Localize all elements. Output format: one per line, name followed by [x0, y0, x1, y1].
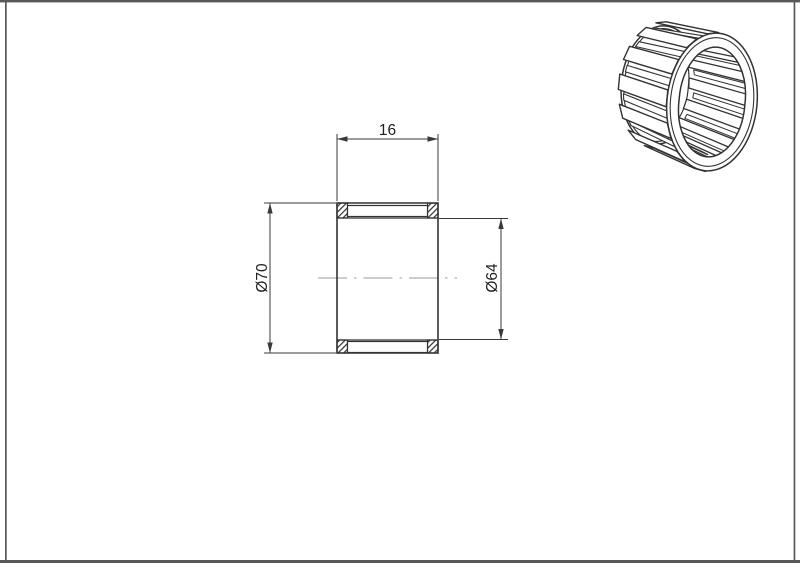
roller-section-top [348, 206, 428, 217]
section-view [318, 203, 457, 353]
hatch-top-left [337, 203, 348, 218]
hatch-top-right [428, 203, 439, 218]
bore-diameter-label: Ø64 [484, 263, 501, 293]
arrowhead-left [337, 136, 348, 141]
hatch-bottom-left [337, 340, 348, 353]
arrowhead-top [498, 219, 503, 230]
arrowhead-bottom [498, 329, 503, 340]
arrowhead-bottom [267, 343, 272, 354]
bore-diameter-dimension: Ø64 [439, 219, 508, 340]
width-dimension-label: 16 [379, 122, 396, 139]
technical-drawing-canvas: 16 Ø70 Ø64 [0, 0, 800, 565]
hatch-bottom-right [428, 340, 439, 353]
frame-bottom [0, 560, 800, 563]
width-dimension: 16 [337, 122, 438, 201]
outer-diameter-label: Ø70 [254, 263, 271, 293]
roller-section-bottom [348, 342, 428, 353]
arrowhead-top [267, 203, 272, 214]
arrowhead-right [428, 136, 439, 141]
frame-top [0, 0, 800, 2]
frame-left [5, 2, 7, 561]
frame-right [794, 2, 796, 561]
bearing-3d-view [618, 22, 757, 172]
